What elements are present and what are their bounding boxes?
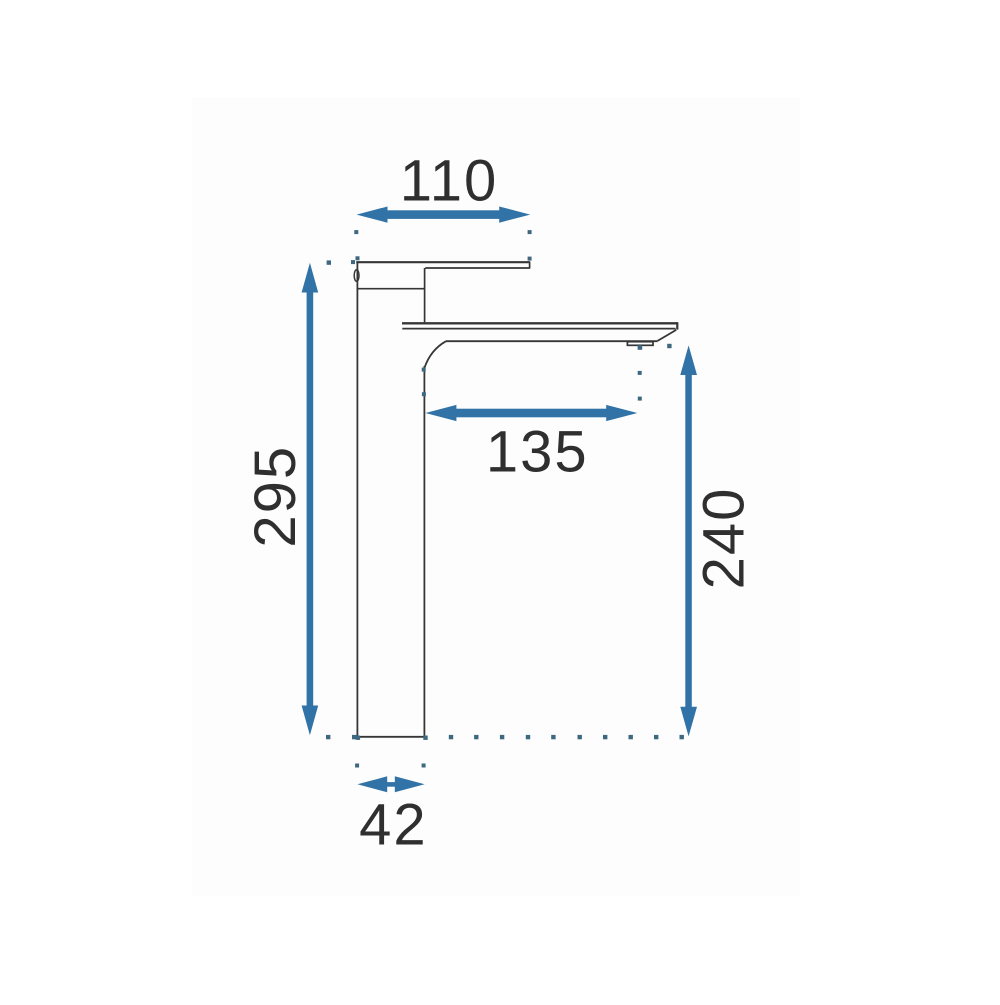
svg-text:42: 42 [359,793,428,858]
svg-text:135: 135 [486,420,589,485]
svg-text:295: 295 [243,445,308,548]
svg-text:240: 240 [692,487,757,590]
svg-text:110: 110 [400,149,498,214]
